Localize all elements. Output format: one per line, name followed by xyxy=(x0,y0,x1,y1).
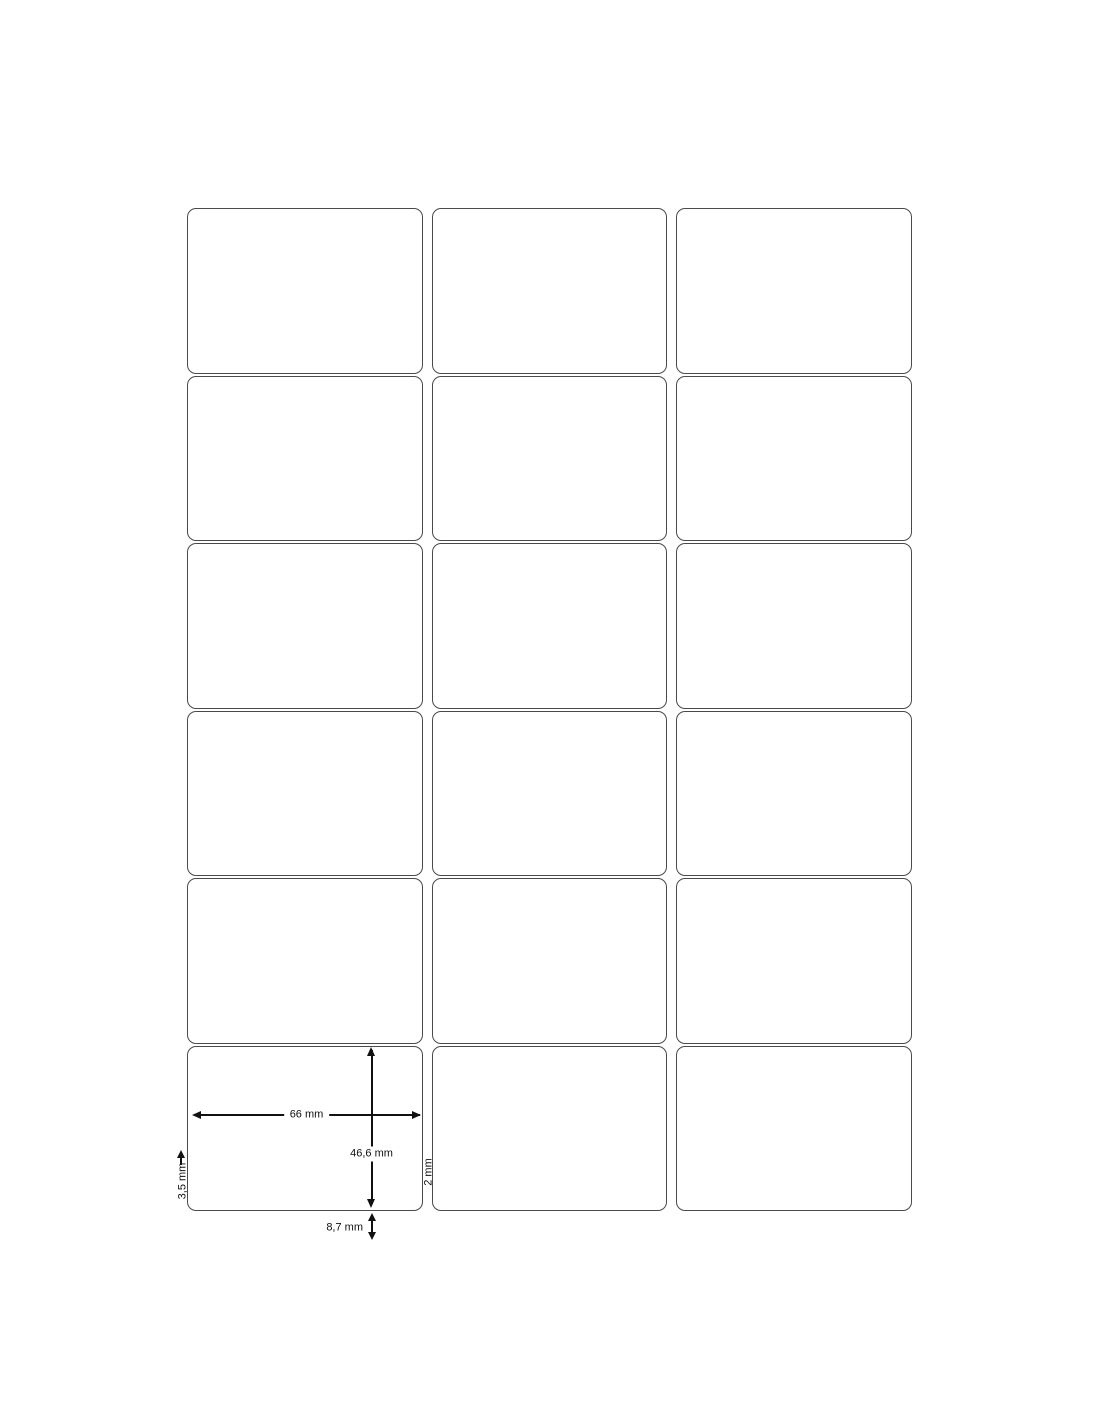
label-cell xyxy=(187,711,423,877)
arrowhead-right-icon xyxy=(412,1111,421,1119)
label-cell xyxy=(432,208,668,374)
label-grid xyxy=(187,208,912,1211)
label-cell xyxy=(187,878,423,1044)
label-cell xyxy=(187,543,423,709)
label-cell xyxy=(432,878,668,1044)
label-cell xyxy=(676,1046,912,1212)
label-cell xyxy=(676,376,912,542)
label-cell xyxy=(676,543,912,709)
side-margin-label: 3,5 mm xyxy=(177,1163,190,1200)
label-cell xyxy=(432,376,668,542)
arrowhead-left-icon xyxy=(192,1111,201,1119)
height-dimension-line xyxy=(371,1050,373,1204)
column-gap-label: 2 mm xyxy=(422,1158,435,1186)
height-dimension-label: 46,6 mm xyxy=(344,1147,399,1162)
arrowhead-up-icon xyxy=(367,1047,375,1056)
width-dimension-label: 66 mm xyxy=(284,1108,330,1123)
arrowhead-up-small-icon xyxy=(368,1213,376,1221)
bottom-margin-label: 8,7 mm xyxy=(326,1221,363,1234)
label-cell xyxy=(676,208,912,374)
label-sheet-diagram: 66 mm 46,6 mm 3,5 mm 2 mm 8,7 mm xyxy=(0,0,1100,1422)
arrowhead-down-icon xyxy=(367,1199,375,1208)
label-cell xyxy=(187,1046,423,1212)
label-cell xyxy=(432,1046,668,1212)
label-cell xyxy=(187,376,423,542)
arrowhead-down-small-icon xyxy=(368,1232,376,1240)
label-cell xyxy=(432,543,668,709)
label-cell xyxy=(432,711,668,877)
label-cell xyxy=(187,208,423,374)
label-cell xyxy=(676,711,912,877)
label-cell xyxy=(676,878,912,1044)
